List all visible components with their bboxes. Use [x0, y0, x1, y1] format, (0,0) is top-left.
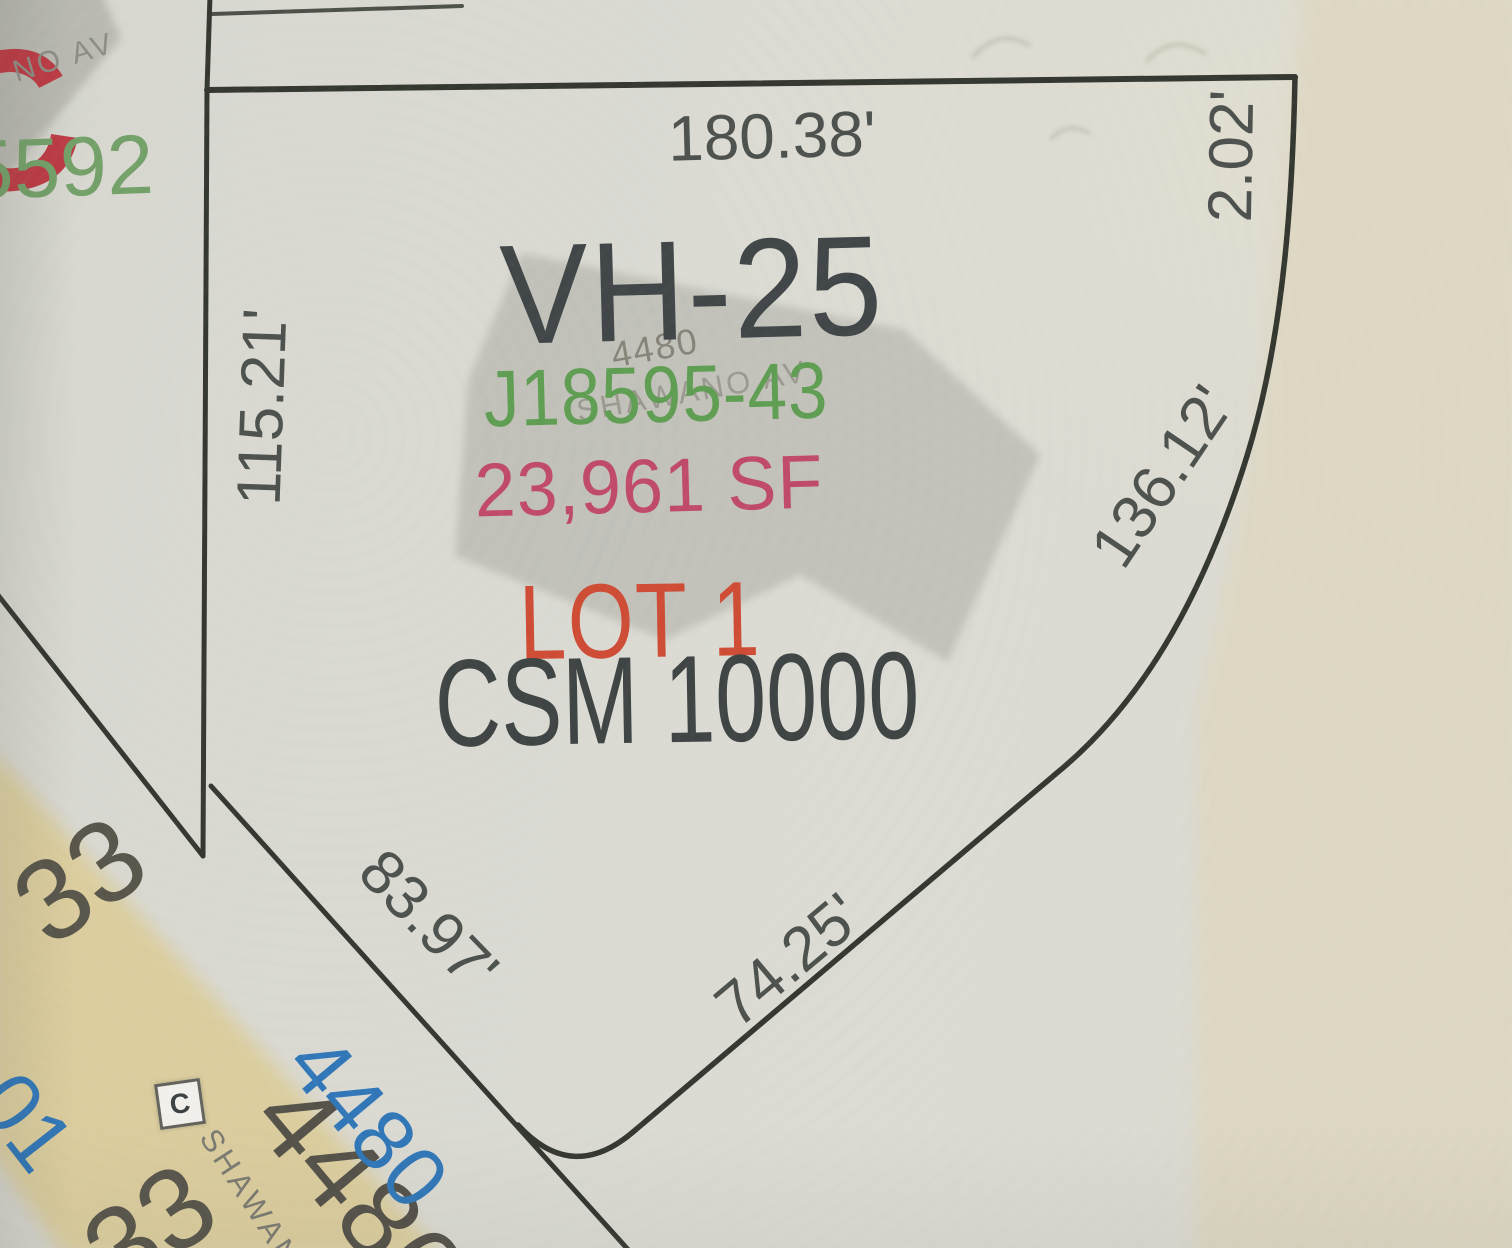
row-number-upper-label: 33 [0, 797, 165, 965]
dimension-west-label: 115.21' [229, 308, 298, 507]
survey-marker-letter: C [168, 1089, 192, 1120]
parcel-map-photo: 4480 SHAWANO AV VH-25 J18595-43 23,961 S… [0, 0, 1512, 1248]
dimension-northeast-label: 2.02' [1200, 89, 1264, 223]
west-boundary-line [203, 0, 210, 856]
csm-number-label: CSM 10000 [434, 634, 921, 766]
pencil-marks [972, 38, 1206, 140]
dimension-south-label: 74.25' [705, 884, 873, 1039]
document-number-label: J18595-43 [483, 351, 829, 440]
north-boundary-line [207, 77, 1295, 90]
dimension-southwest-label: 83.97' [348, 839, 509, 1002]
zoning-code-label: VH-25 [498, 215, 885, 367]
survey-marker-box: C [154, 1078, 206, 1130]
parcel-area-label: 23,961 SF [474, 444, 825, 529]
neighbor-parcel-green-label: 5592 [0, 122, 155, 212]
address-partial-blue-label: 01 [0, 1058, 88, 1186]
dimension-east-curve-label: 136.12' [1081, 376, 1245, 578]
north-extra-line [212, 6, 462, 14]
dimension-north-label: 180.38' [667, 101, 877, 170]
